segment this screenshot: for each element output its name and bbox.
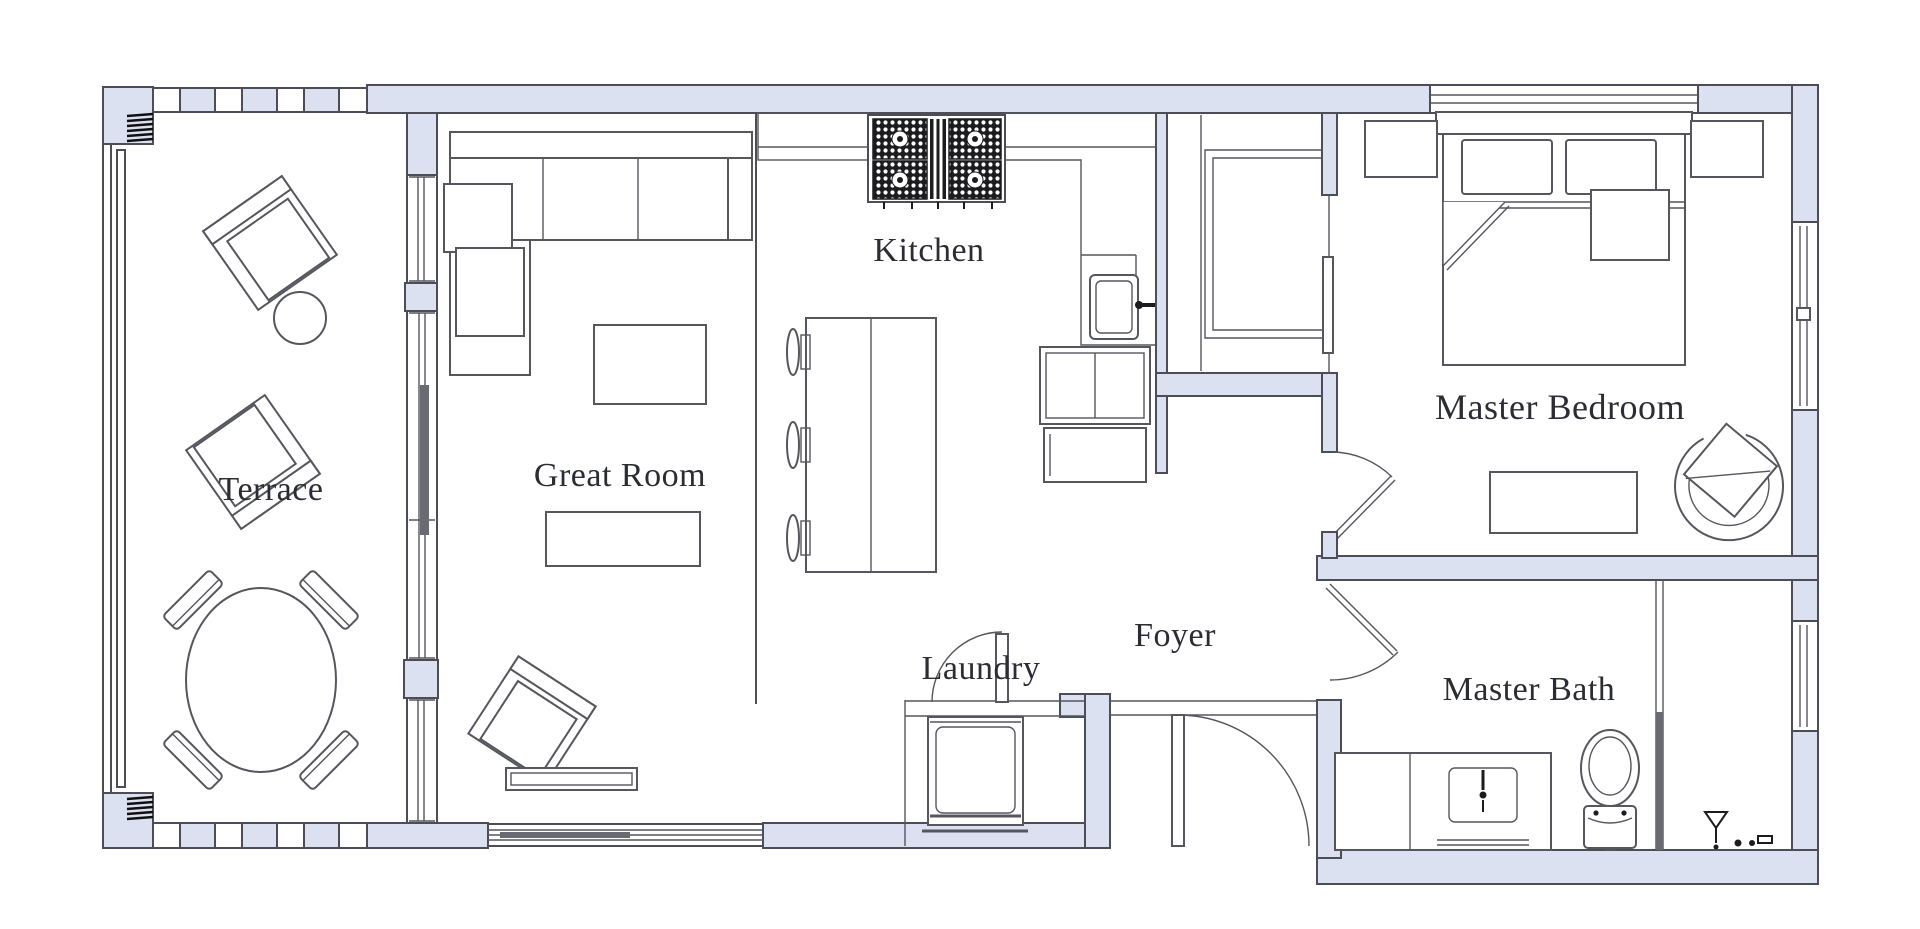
right-wall-upper [1792, 85, 1818, 222]
terrace-south-railing [153, 823, 367, 848]
bedroom-window-east [1792, 222, 1818, 410]
bottom-wall-west-segment [367, 823, 488, 848]
sofa-pillow [444, 184, 512, 252]
media-console [506, 768, 637, 790]
closet [1156, 113, 1337, 473]
great-room: Great Room [444, 113, 756, 790]
nightstand-right [1691, 121, 1763, 177]
wall-block [405, 283, 437, 311]
patio-door-slab [500, 832, 630, 838]
pillow [1566, 140, 1656, 194]
closet-west-wall [1156, 113, 1167, 473]
terrace-dining-table [186, 588, 336, 772]
closet-east-wall-lower [1322, 373, 1337, 452]
kitchen-counter-left [758, 113, 868, 160]
stove [868, 115, 1005, 209]
entry-door [1172, 715, 1309, 846]
accent-chair [468, 656, 595, 783]
bedroom-bench [1490, 472, 1637, 533]
ottoman [546, 512, 700, 566]
foyer: Foyer [1110, 617, 1317, 846]
terrace: Terrace [103, 87, 367, 848]
closet-east-wall-upper [1322, 113, 1337, 195]
terrace-side-table [274, 292, 326, 344]
terrace-dining-set [163, 570, 360, 791]
terrace-left-edge [103, 144, 111, 794]
terrace-lounge-chair-1 [203, 176, 337, 310]
shower-fixture [1705, 812, 1772, 850]
refrigerator [1040, 347, 1150, 482]
sliding-door-slab [420, 385, 429, 535]
foyer-label: Foyer [1134, 617, 1216, 654]
kitchen-island [787, 318, 936, 572]
laundry: Laundry [905, 632, 1085, 846]
top-wall-left-of-bed-window [367, 85, 1430, 113]
bed [1436, 112, 1692, 365]
headboard [1436, 112, 1692, 134]
entry-jamb-wall [1085, 694, 1110, 848]
nightstand-left [1365, 121, 1437, 177]
bottom-wall-center-segment [763, 823, 1085, 848]
bath-vanity [1335, 753, 1551, 850]
bed-head-window [1430, 85, 1698, 113]
laundry-label: Laundry [922, 650, 1041, 687]
door-jamb-block [1322, 532, 1337, 558]
closet-shelves [1201, 115, 1322, 371]
terrace-north-railing [153, 88, 367, 112]
great-room-west-wall [404, 113, 438, 823]
pillow [1462, 140, 1552, 194]
terrace-lounge-chair-2 [186, 395, 320, 529]
entry-door-leaf [1172, 715, 1184, 846]
bedroom-door [1330, 452, 1395, 542]
great-room-label: Great Room [534, 457, 706, 494]
master-bath: Master Bath [1317, 532, 1818, 858]
terrace-screen [117, 150, 125, 787]
kitchen-label: Kitchen [873, 232, 984, 269]
stove-knobs [884, 202, 992, 209]
terrace-label: Terrace [219, 471, 324, 508]
bath-bottom-wall [1317, 850, 1818, 884]
toilet [1581, 730, 1639, 850]
washer [922, 717, 1028, 831]
patio-sliding-door [488, 824, 763, 846]
throw-pillow [1591, 190, 1669, 260]
kitchen-sink [1090, 275, 1165, 339]
terrace-corner-post-sw [103, 793, 153, 848]
chaise-cushion [456, 248, 524, 336]
wall-block [407, 113, 437, 175]
bath-door [1326, 584, 1398, 680]
bath-window-east [1792, 621, 1818, 731]
closet-south-wall [1156, 373, 1337, 396]
kitchen: Kitchen [758, 113, 1165, 572]
floor-plan: Terrace [0, 0, 1920, 924]
wall-block [404, 660, 438, 698]
bedroom-armchair [1653, 410, 1805, 562]
master-bath-label: Master Bath [1443, 671, 1616, 708]
bedroom-bath-divider-wall [1317, 556, 1818, 580]
shower-partition [1656, 580, 1663, 850]
coffee-table [594, 325, 706, 404]
master-bedroom: Master Bedroom [1330, 85, 1818, 562]
right-wall-middle [1792, 410, 1818, 621]
master-bedroom-label: Master Bedroom [1435, 387, 1685, 427]
closet-pocket-door [1323, 257, 1333, 353]
